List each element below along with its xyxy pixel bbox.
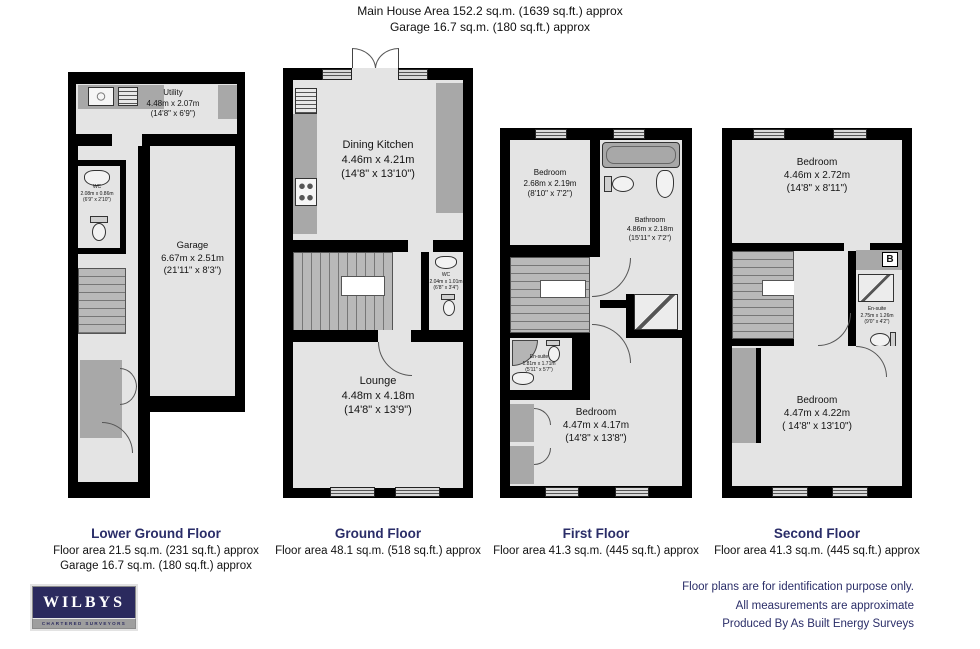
room-name: Lounge	[313, 374, 443, 389]
floor-area-line: Floor area 48.1 sq.m. (518 sq.ft.) appro…	[263, 544, 493, 559]
fridge-icon	[295, 88, 317, 114]
disclaimer-line-1: Floor plans are for identification purpo…	[682, 578, 914, 597]
boiler-box: B	[882, 252, 898, 267]
disclaimer: Floor plans are for identification purpo…	[682, 578, 914, 634]
wall	[78, 160, 126, 166]
bathtub-icon	[602, 142, 680, 168]
toilet-icon	[443, 300, 455, 316]
room-dim-metric: 4.48m x 2.07m	[123, 99, 223, 110]
room-dim-imperial: (14'8" x 6'9")	[123, 109, 223, 120]
plan-lower-ground-floor: Utility 4.48m x 2.07m (14'8" x 6'9") Gar…	[68, 72, 245, 498]
hob-icon	[295, 178, 317, 206]
floor-title: Lower Ground Floor	[41, 526, 271, 541]
room-dim-imperial: (14'8" x 13'9")	[313, 403, 443, 418]
floor-area-line: Floor area 41.3 sq.m. (445 sq.ft.) appro…	[481, 544, 711, 559]
room-label-utility: Utility 4.48m x 2.07m (14'8" x 6'9")	[123, 88, 223, 120]
wall	[78, 248, 126, 254]
wardrobe	[510, 446, 534, 484]
room-dim-imperial: (6'9" x 2'10")	[74, 197, 120, 204]
floor-title: Ground Floor	[263, 526, 493, 541]
door-opening	[352, 68, 398, 80]
wilbys-logo: WILBYS CHARTERED SURVEYORS	[30, 584, 138, 631]
window	[833, 129, 867, 139]
disclaimer-line-3: Produced By As Built Energy Surveys	[682, 615, 914, 634]
shower-icon	[634, 294, 678, 330]
floor-area-line: Garage 16.7 sq.m. (180 sq.ft.) approx	[41, 559, 271, 574]
room-label-lounge: Lounge 4.48m x 4.18m (14'8" x 13'9")	[313, 374, 443, 418]
window	[615, 487, 649, 497]
wall	[138, 146, 150, 396]
room-label-ensuite: En-suite 1.81m x 1.71m (5'11" x 5'7")	[502, 354, 576, 374]
room-label-dining-kitchen: Dining Kitchen 4.46m x 4.21m (14'8" x 13…	[313, 138, 443, 182]
window	[322, 69, 352, 80]
room-dim-metric: 4.48m x 4.18m	[313, 389, 443, 404]
wall	[848, 251, 856, 341]
wardrobe	[732, 348, 756, 443]
wall	[756, 348, 761, 443]
room-name: Bathroom	[612, 216, 688, 225]
room-dim-imperial: (21'11" x 8'3")	[150, 265, 235, 278]
shower-icon	[858, 274, 894, 302]
caption-second-floor: Second Floor Floor area 41.3 sq.m. (445 …	[702, 526, 932, 559]
window	[398, 69, 428, 80]
room-label-bedroom-2: Bedroom 4.47m x 4.22m ( 14'8" x 13'10")	[762, 394, 872, 434]
room-dim-imperial: (14'8" x 8'11")	[762, 182, 872, 195]
room-name: Bedroom	[540, 406, 652, 419]
plan-ground-floor: Dining Kitchen 4.46m x 4.21m (14'8" x 13…	[283, 48, 473, 498]
wall	[283, 330, 378, 342]
wall	[283, 240, 408, 252]
utility-sink	[88, 87, 114, 106]
wall	[68, 134, 245, 146]
room-dim-metric: 4.86m x 2.18m	[612, 225, 688, 234]
wall	[411, 330, 473, 342]
stair-landing	[341, 276, 385, 296]
toilet-icon	[92, 223, 106, 241]
wall	[626, 294, 634, 338]
room-dim-metric: 6.67m x 2.51m	[150, 253, 235, 266]
toilet-icon	[612, 176, 634, 192]
room-name: WC	[74, 184, 120, 191]
room-name: Garage	[150, 240, 235, 253]
floor-title: Second Floor	[702, 526, 932, 541]
floor-hall	[393, 252, 421, 330]
wall	[120, 166, 126, 254]
bathroom-sink	[656, 170, 674, 198]
window	[330, 487, 375, 497]
plan-second-floor: Bedroom 4.46m x 2.72m (14'8" x 8'11") B …	[722, 128, 912, 498]
room-name: WC	[427, 272, 465, 279]
room-name: En-suite	[502, 354, 576, 361]
toilet-icon	[604, 176, 612, 192]
room-dim-imperial: (5'11" x 5'7")	[502, 367, 576, 374]
door-opening	[112, 134, 142, 146]
room-dim-metric: 2.68m x 2.19m	[504, 179, 596, 190]
room-name: Utility	[123, 88, 223, 99]
room-name: Bedroom	[762, 394, 872, 407]
room-dim-metric: 2.75m x 1.26m	[848, 313, 906, 320]
toilet-icon	[870, 333, 890, 347]
header-main-house-area: Main House Area 152.2 sq.m. (1639 sq.ft.…	[0, 4, 980, 20]
window	[535, 129, 567, 139]
wall	[634, 330, 682, 338]
window	[753, 129, 785, 139]
ensuite-sink	[512, 372, 534, 385]
window	[772, 487, 808, 497]
stair-landing	[540, 280, 586, 298]
plan-first-floor: Bedroom 2.68m x 2.19m (8'10" x 7'2") Bat…	[500, 128, 692, 498]
wall	[590, 128, 600, 250]
room-label-garage: Garage 6.67m x 2.51m (21'11" x 8'3")	[150, 240, 235, 278]
caption-ground-floor: Ground Floor Floor area 48.1 sq.m. (518 …	[263, 526, 493, 559]
room-dim-imperial: ( 14'8" x 13'10")	[762, 420, 872, 433]
floor-area-line: Floor area 21.5 sq.m. (231 sq.ft.) appro…	[41, 544, 271, 559]
french-door-arc	[375, 48, 399, 69]
disclaimer-line-2: All measurements are approximate	[682, 597, 914, 616]
room-label-bathroom: Bathroom 4.86m x 2.18m (15'11" x 7'2")	[612, 216, 688, 244]
toilet-icon	[90, 216, 108, 223]
room-dim-metric: 4.46m x 4.21m	[313, 153, 443, 168]
caption-lower-ground-floor: Lower Ground Floor Floor area 21.5 sq.m.…	[41, 526, 271, 573]
room-dim-imperial: (9'0" x 4'2")	[848, 319, 906, 326]
wall	[500, 390, 580, 400]
room-dim-imperial: (14'8" x 13'8")	[540, 432, 652, 445]
door-opening	[378, 330, 411, 342]
room-label-bedroom-2: Bedroom 4.47m x 4.17m (14'8" x 13'8")	[540, 406, 652, 446]
room-label-wc: WC 2.08m x 0.86m (6'9" x 2'10")	[74, 184, 120, 204]
room-label-ensuite: En-suite 2.75m x 1.26m (9'0" x 4'2")	[848, 306, 906, 326]
stair-landing	[762, 280, 796, 296]
caption-first-floor: First Floor Floor area 41.3 sq.m. (445 s…	[481, 526, 711, 559]
room-name: Dining Kitchen	[313, 138, 443, 153]
room-dim-metric: 4.47m x 4.22m	[762, 407, 872, 420]
floorplan-page: Main House Area 152.2 sq.m. (1639 sq.ft.…	[0, 0, 980, 649]
window	[395, 487, 440, 497]
wall	[572, 333, 580, 390]
stairs	[78, 268, 126, 334]
floor-area-line: Floor area 41.3 sq.m. (445 sq.ft.) appro…	[702, 544, 932, 559]
floor-title: First Floor	[481, 526, 711, 541]
room-dim-metric: 4.47m x 4.17m	[540, 419, 652, 432]
room-dim-metric: 2.04m x 1.01m	[427, 279, 465, 286]
room-dim-imperial: (14'8" x 13'10")	[313, 167, 443, 182]
room-dim-imperial: (6'8" x 3'4")	[427, 285, 465, 292]
header: Main House Area 152.2 sq.m. (1639 sq.ft.…	[0, 4, 980, 35]
french-door-arc	[352, 48, 376, 69]
room-name: Bedroom	[504, 168, 596, 179]
room-name: Bedroom	[762, 156, 872, 169]
window	[832, 487, 868, 497]
logo-wordmark: WILBYS	[32, 586, 136, 618]
room-label-bedroom-1: Bedroom 2.68m x 2.19m (8'10" x 7'2")	[504, 168, 596, 200]
room-dim-metric: 4.46m x 2.72m	[762, 169, 872, 182]
wardrobe	[510, 404, 534, 442]
room-dim-imperial: (15'11" x 7'2")	[612, 234, 688, 243]
window	[613, 129, 645, 139]
logo-tagline: CHARTERED SURVEYORS	[32, 618, 136, 629]
wall	[500, 245, 590, 257]
window	[545, 487, 579, 497]
room-dim-metric: 1.81m x 1.71m	[502, 361, 576, 368]
room-name: En-suite	[848, 306, 906, 313]
room-dim-imperial: (8'10" x 7'2")	[504, 189, 596, 200]
door-opening	[408, 240, 433, 252]
header-garage-area: Garage 16.7 sq.m. (180 sq.ft.) approx	[0, 20, 980, 36]
room-label-bedroom-1: Bedroom 4.46m x 2.72m (14'8" x 8'11")	[762, 156, 872, 196]
room-dim-metric: 2.08m x 0.86m	[74, 191, 120, 198]
room-label-wc: WC 2.04m x 1.01m (6'8" x 3'4")	[427, 272, 465, 292]
bathtub-inner	[606, 146, 676, 164]
wall	[433, 240, 473, 252]
wc-sink	[435, 256, 457, 269]
wall	[722, 243, 844, 251]
